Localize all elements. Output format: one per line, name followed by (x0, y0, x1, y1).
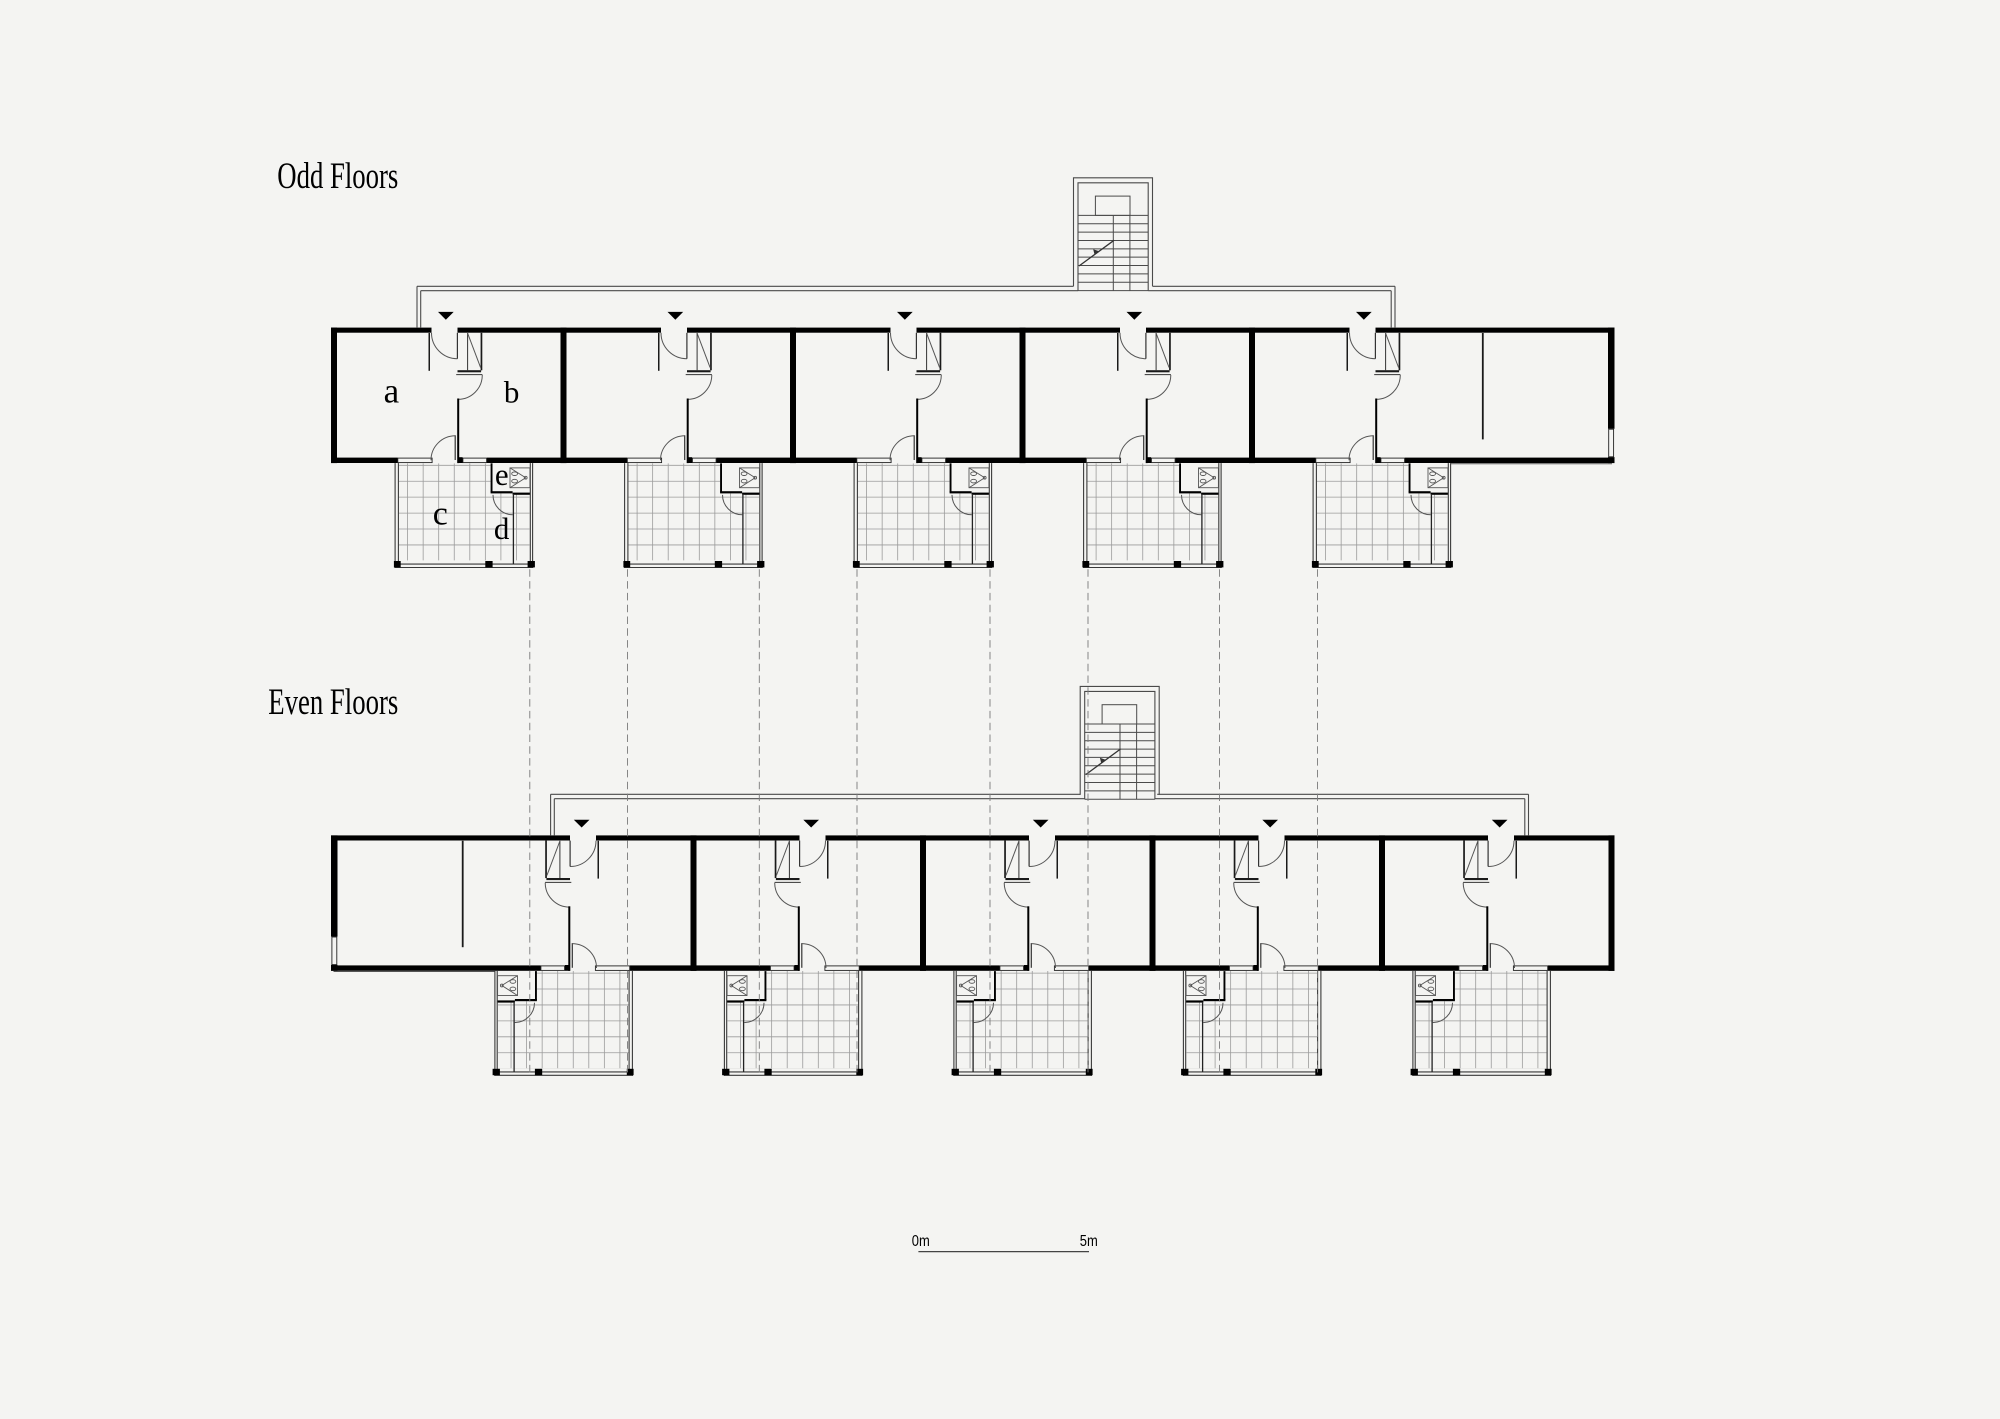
svg-text:Even Floors: Even Floors (268, 682, 398, 723)
svg-text:0m: 0m (912, 1233, 930, 1250)
svg-text:5m: 5m (1080, 1233, 1098, 1250)
svg-text:c: c (433, 496, 448, 533)
svg-text:e: e (495, 457, 509, 492)
svg-text:a: a (384, 372, 400, 411)
svg-text:Odd Floors: Odd Floors (277, 156, 398, 197)
svg-text:d: d (494, 511, 510, 546)
svg-text:b: b (504, 375, 520, 410)
